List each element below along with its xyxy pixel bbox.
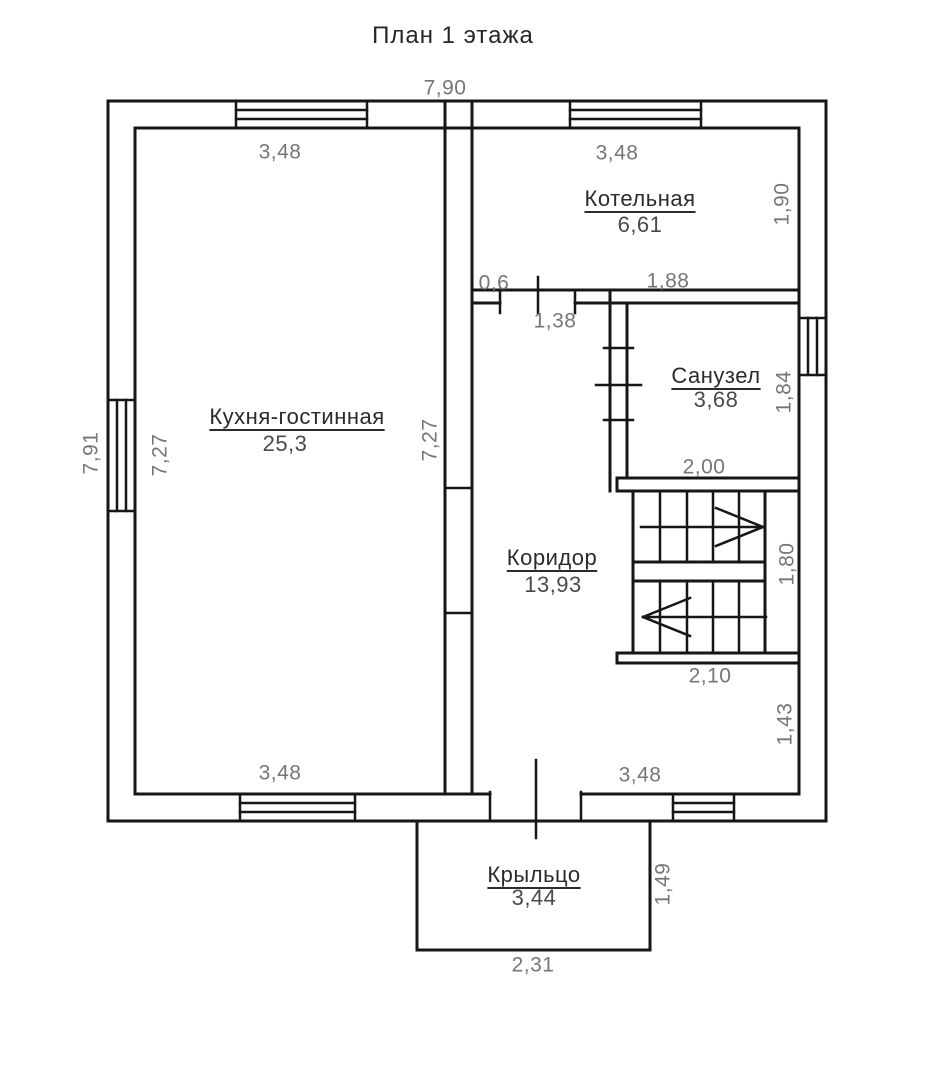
window-top-left xyxy=(236,101,367,128)
room-area-boiler: 6,61 xyxy=(618,214,663,236)
kitchen-corridor-wall xyxy=(445,101,472,794)
room-label-kitchen: Кухня-гостинная xyxy=(209,406,384,428)
page-title: План 1 этажа xyxy=(372,24,534,48)
dim-bathroom-height: 1,84 xyxy=(774,371,795,414)
dim-total-height: 7,91 xyxy=(81,432,102,475)
dim-bathroom-width: 2,00 xyxy=(683,457,726,478)
window-left-wall xyxy=(108,400,135,511)
dim-boiler-wall-left: 0,6 xyxy=(479,273,510,294)
window-bottom-right xyxy=(673,794,734,821)
floor-plan-drawing xyxy=(0,0,926,1080)
boiler-room-wall xyxy=(472,277,799,313)
window-right-wall xyxy=(799,318,826,375)
stairs-down-arrow-icon xyxy=(643,598,766,636)
room-label-boiler: Котельная xyxy=(585,188,696,210)
dim-understairs-height: 1,43 xyxy=(775,703,796,746)
dim-kitchen-height-left: 7,27 xyxy=(150,434,171,477)
dim-boiler-wall-right: 1,88 xyxy=(647,271,690,292)
dim-boiler-height: 1,90 xyxy=(772,183,793,226)
dim-kitchen-width-top: 3,48 xyxy=(259,142,302,163)
room-area-porch: 3,44 xyxy=(512,887,557,909)
dim-stairs-width: 2,10 xyxy=(689,666,732,687)
dim-total-width: 7,90 xyxy=(424,78,467,99)
room-area-kitchen: 25,3 xyxy=(263,433,308,455)
dim-hall-width-bottom: 3,48 xyxy=(619,765,662,786)
room-label-bathroom: Санузел xyxy=(671,365,760,387)
dim-porch-height: 1,49 xyxy=(653,863,674,906)
dim-boiler-width: 3,48 xyxy=(596,143,639,164)
entrance-door-opening xyxy=(490,760,581,838)
dim-kitchen-height-right: 7,27 xyxy=(420,419,441,462)
dim-stairs-height: 1,80 xyxy=(777,543,798,586)
dim-porch-width: 2,31 xyxy=(512,955,555,976)
window-bottom-left xyxy=(240,794,355,821)
staircase xyxy=(617,491,799,663)
room-area-corridor: 13,93 xyxy=(524,574,582,596)
room-label-corridor: Коридор xyxy=(507,547,597,569)
room-label-porch: Крыльцо xyxy=(487,864,580,886)
dim-kitchen-width-bottom: 3,48 xyxy=(259,763,302,784)
dim-boiler-door-width: 1,38 xyxy=(534,311,577,332)
floor-plan: План 1 этажа 7,90 7,91 Кухня-гостинная 2… xyxy=(0,0,926,1080)
window-top-right xyxy=(570,101,701,128)
room-area-bathroom: 3,68 xyxy=(694,389,739,411)
